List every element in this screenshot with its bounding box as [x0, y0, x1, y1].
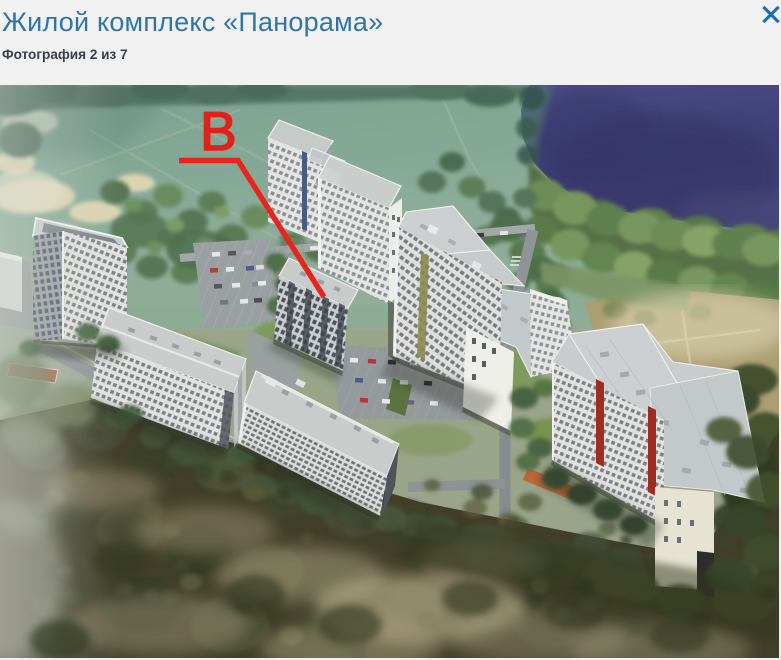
svg-text:В: В [200, 100, 237, 162]
